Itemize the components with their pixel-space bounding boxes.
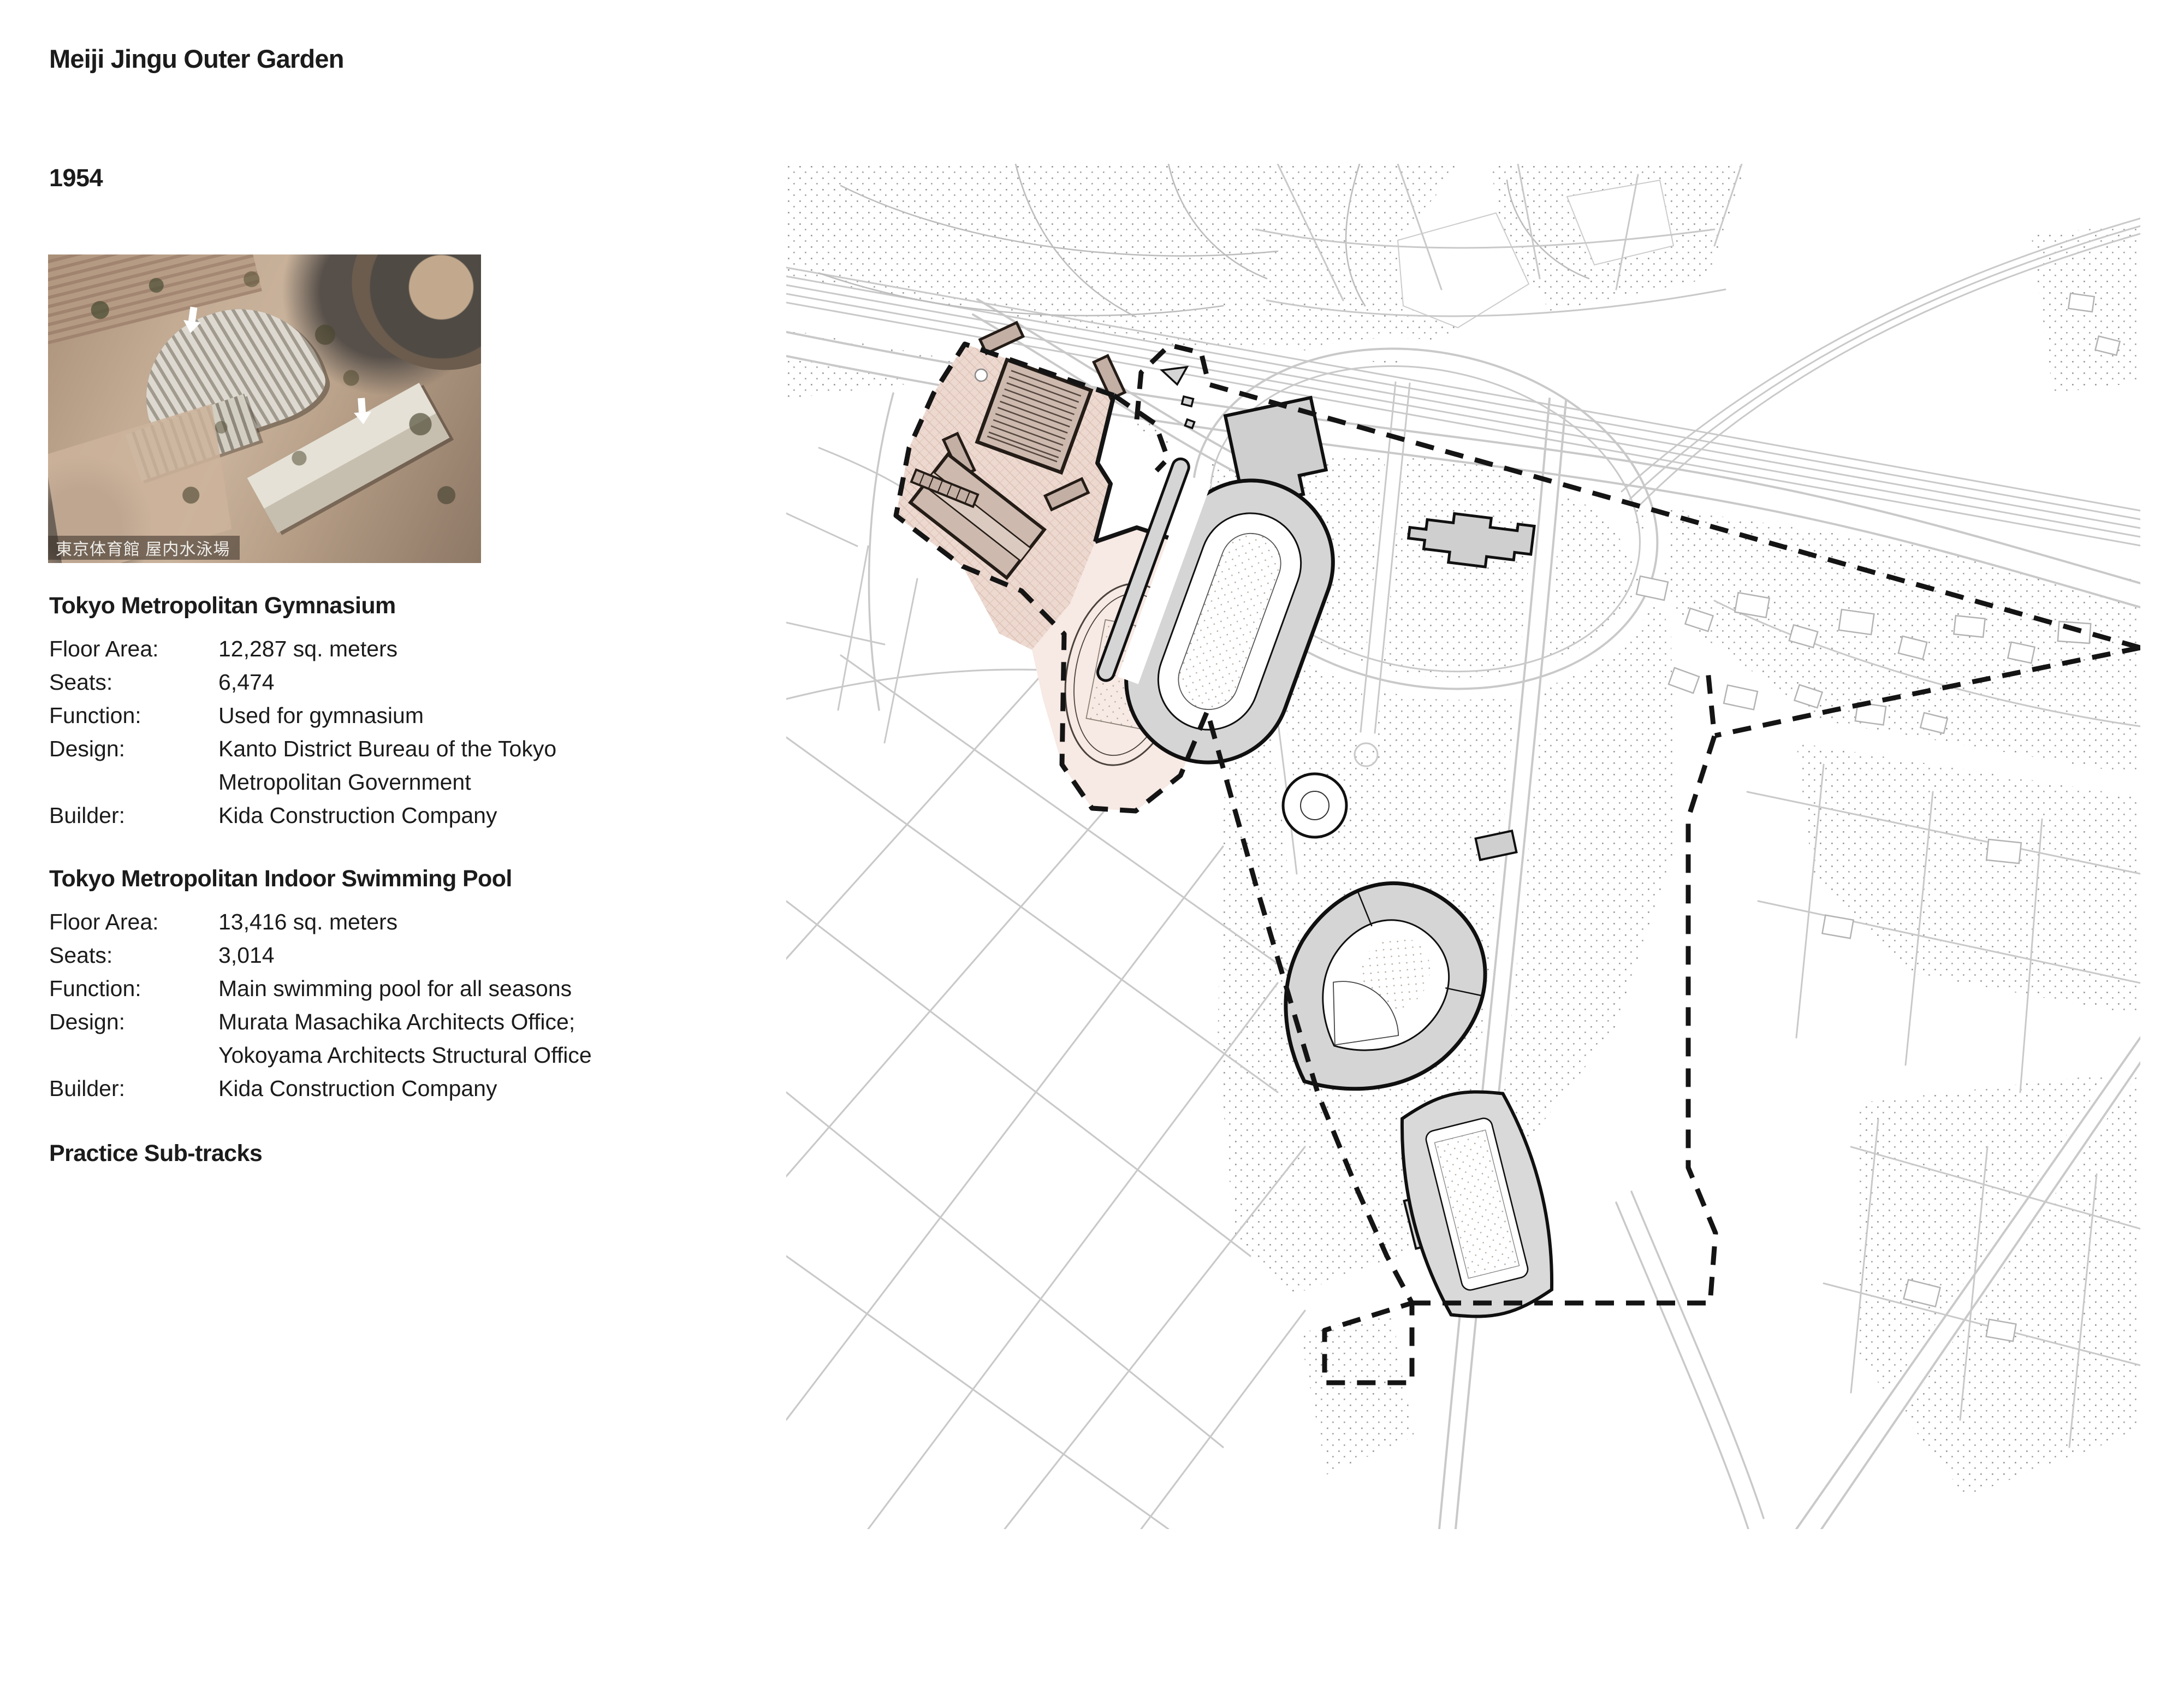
aerial-photo: 東京体育館 屋内水泳場 [48, 254, 481, 563]
spec-value: 13,416 sq. meters [218, 905, 592, 939]
spec-value: 12,287 sq. meters [218, 632, 556, 666]
spec-label: Function: [49, 972, 218, 1005]
spec-label: Floor Area: [49, 632, 218, 666]
spec-value: Kida Construction Company [218, 799, 556, 832]
subtracks-heading: Practice Sub-tracks [49, 1140, 262, 1167]
section-heading-gymnasium: Tokyo Metropolitan Gymnasium [49, 593, 396, 619]
spec-value: Main swimming pool for all seasons [218, 972, 592, 1005]
spec-label: Builder: [49, 799, 218, 832]
gymnasium-spec-table: Floor Area:12,287 sq. meters Seats:6,474… [49, 632, 556, 832]
year-label: 1954 [49, 164, 103, 192]
section-heading-swimming-pool: Tokyo Metropolitan Indoor Swimming Pool [49, 866, 512, 892]
spec-value: 3,014 [218, 939, 592, 972]
spec-label: Floor Area: [49, 905, 218, 939]
spec-label: Design: [49, 732, 218, 799]
spec-value: 6,474 [218, 666, 556, 699]
swimming-pool-spec-table: Floor Area:13,416 sq. meters Seats:3,014… [49, 905, 592, 1105]
spec-value: Kanto District Bureau of the Tokyo Metro… [218, 732, 556, 799]
site-monument [975, 369, 987, 381]
spec-label: Seats: [49, 666, 218, 699]
spec-label: Design: [49, 1005, 218, 1072]
fountain [1283, 774, 1346, 837]
photo-trees-overlay [48, 254, 481, 563]
spec-value: Kida Construction Company [218, 1072, 592, 1105]
page-title: Meiji Jingu Outer Garden [49, 44, 344, 74]
spec-label: Builder: [49, 1072, 218, 1105]
site-map [786, 164, 2140, 1529]
spec-value: Murata Masachika Architects Office; Yoko… [218, 1005, 592, 1072]
photo-caption: 東京体育館 屋内水泳場 [48, 536, 240, 560]
spec-label: Function: [49, 699, 218, 732]
spec-label: Seats: [49, 939, 218, 972]
spec-value: Used for gymnasium [218, 699, 556, 732]
